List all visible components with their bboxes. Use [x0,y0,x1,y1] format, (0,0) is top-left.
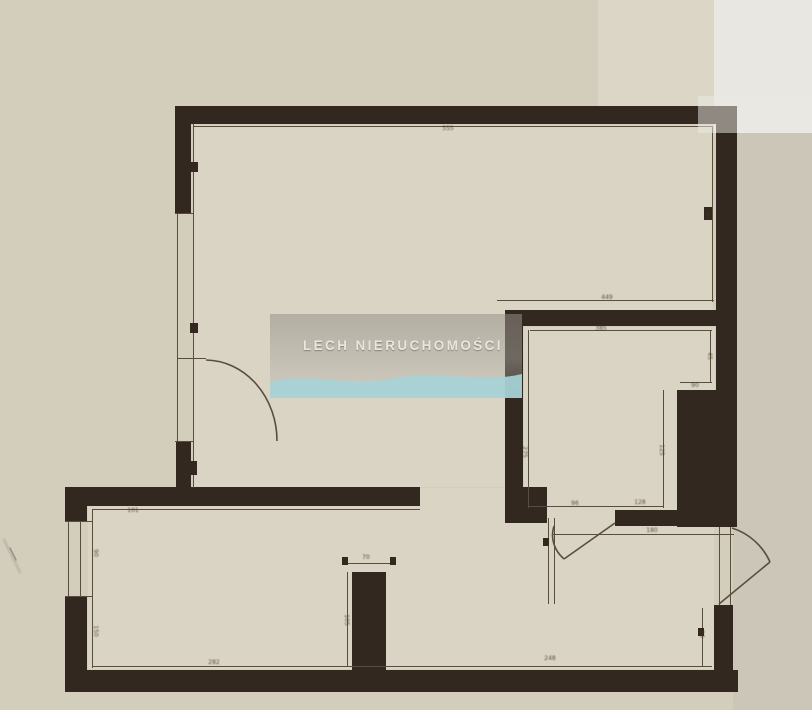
door-arc [206,360,277,441]
watermark-wave [270,362,522,398]
door-arc [719,562,770,604]
paper-fold-overlay [698,96,812,133]
door-arc [553,526,564,559]
watermark-wave-shape [270,374,522,398]
floorplan-screenshot: 5552904493854590125275101901502827010518… [0,0,812,710]
watermark: LECH NIERUCHOMOŚCI [270,314,522,398]
watermark-text: LECH NIERUCHOMOŚCI [303,338,503,353]
door-arc [564,523,615,559]
scratch-mark [4,540,20,572]
door-arc [732,528,770,562]
